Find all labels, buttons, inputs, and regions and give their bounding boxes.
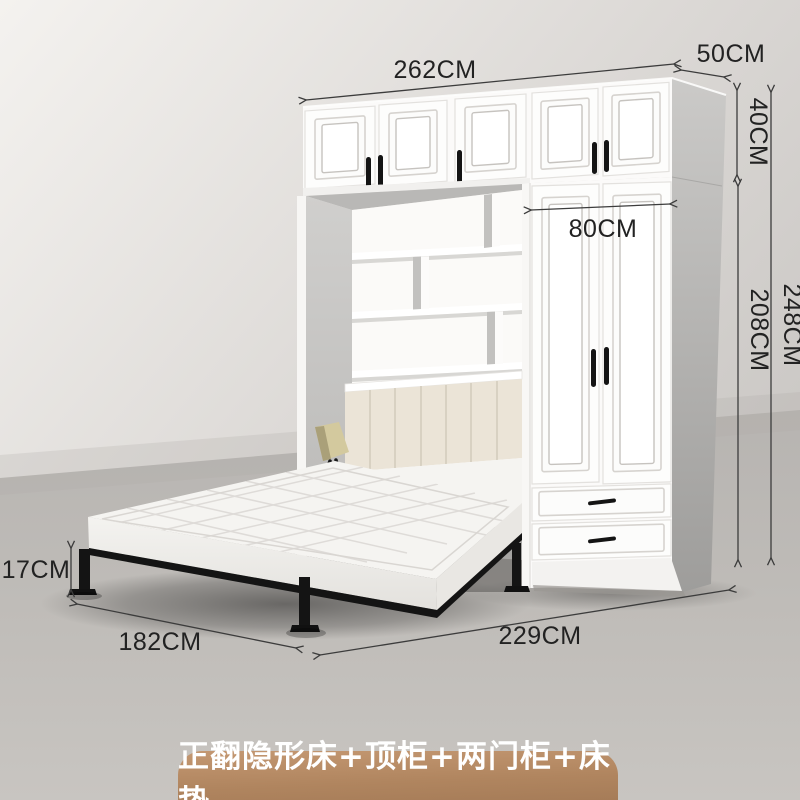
dim-label-total-height: 248CM [778, 283, 800, 366]
dim-label-top-cabinet-height: 40CM [744, 98, 772, 167]
product-banner-label: 正翻隐形床+顶柜+两门柜+床垫 [178, 731, 618, 800]
door-handle[interactable] [592, 142, 597, 174]
top-cabinet-door-4[interactable] [532, 88, 598, 179]
dim-label-bed-width: 182CM [118, 628, 201, 656]
dim-label-bed-floor-length: 229CM [498, 622, 581, 650]
door-handle[interactable] [604, 140, 609, 172]
shelf-divider [413, 257, 421, 310]
bed-leg [299, 577, 310, 629]
leg-contact-shadow [66, 592, 102, 600]
shelf-divider [484, 194, 492, 248]
top-cabinet-door-3[interactable] [455, 94, 526, 182]
top-cabinet-door-1[interactable] [305, 106, 375, 189]
dim-label-wardrobe-body-height: 208CM [745, 288, 773, 371]
wardrobe-door-handle[interactable] [591, 349, 596, 387]
dim-label-bed-frame-height: 17CM [2, 556, 71, 584]
top-cabinet-door-2[interactable] [379, 100, 447, 186]
leg-contact-shadow [286, 628, 326, 638]
wardrobe-door-handle[interactable] [604, 347, 609, 385]
top-cabinet-door-5[interactable] [603, 82, 669, 176]
product-image: 262CM 50CM 40CM 248CM 208CM 80CM 17CM 1 [0, 0, 800, 800]
dim-label-cabinet-depth: 50CM [697, 40, 766, 68]
cavity-right-stile [522, 183, 530, 590]
bed-foot [504, 586, 530, 592]
shelf-divider [487, 312, 495, 365]
shelf-divider [492, 193, 500, 247]
shelf-divider [495, 311, 503, 364]
bed-leg [512, 543, 521, 590]
product-banner: 正翻隐形床+顶柜+两门柜+床垫 [178, 751, 618, 800]
scene: 262CM 50CM 40CM 248CM 208CM 80CM 17CM 1 [0, 0, 800, 800]
dim-label-cabinet-total-width: 262CM [393, 56, 476, 84]
shelf-divider [421, 256, 429, 309]
headboard-cushion [345, 379, 522, 472]
door-handle[interactable] [457, 150, 462, 184]
bed-leg [79, 549, 90, 593]
dim-label-wardrobe-width: 80CM [569, 215, 638, 243]
